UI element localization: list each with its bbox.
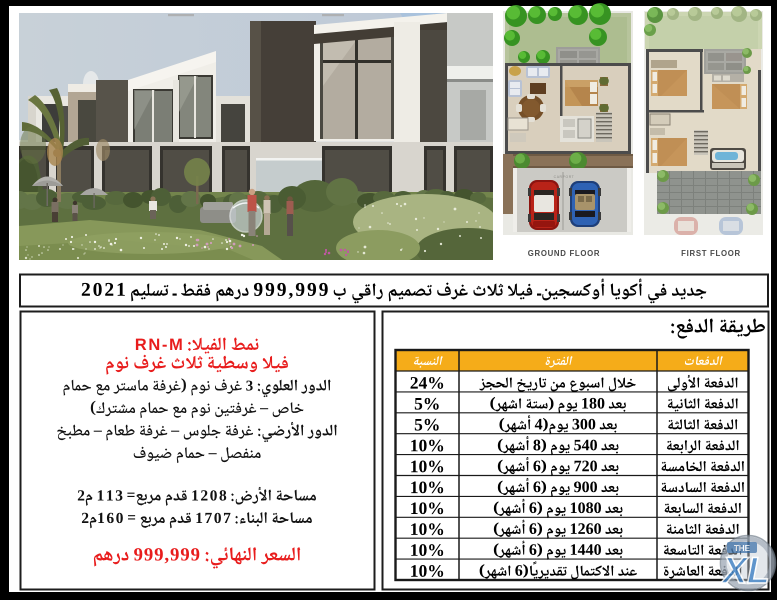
svg-text:XL: XL [720,550,769,591]
svg-text:GROUND FLOOR: GROUND FLOOR [528,249,601,258]
svg-text:FIRST FLOOR: FIRST FLOOR [681,249,741,258]
svg-text:CARPORT: CARPORT [554,175,575,179]
